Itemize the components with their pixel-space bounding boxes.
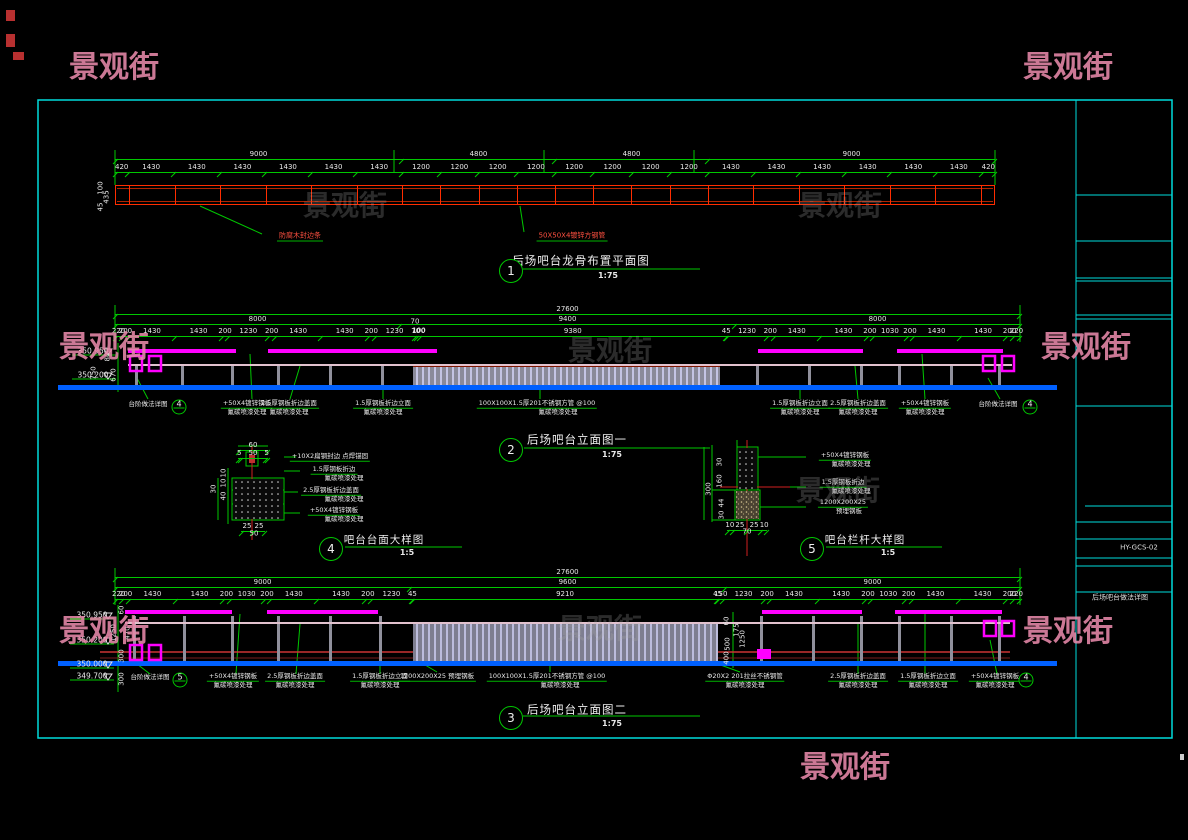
watermark: 景观街 (1041, 322, 1131, 366)
view-number-3: 3 (499, 706, 523, 730)
cad-text: 台阶做法详图 (129, 401, 168, 408)
watermark: 景观街 (568, 329, 652, 369)
dimension-row: 900096009000 (115, 578, 1020, 588)
cad-text: 44 (719, 499, 726, 508)
cad-text: 氟碳喷漆处理 (726, 682, 765, 689)
plan-label: 防腐木封边条 (277, 233, 323, 242)
watermark: 景观街 (1023, 42, 1113, 86)
dimension-row: 800094008000 (115, 315, 1020, 325)
cad-text: 10 (221, 479, 228, 488)
cad-text: 70 (411, 319, 420, 326)
cad-text: 氟碳喷漆处理 (276, 682, 315, 689)
cad-text: 氟碳喷漆处理 (976, 682, 1015, 689)
detail-callout-4: 4 (172, 400, 187, 415)
cad-text: 氟碳喷漆处理 (839, 409, 878, 416)
cad-text: 435 (104, 190, 111, 203)
cad-text: 氟碳喷漆处理 (781, 409, 820, 416)
view-title: 后场吧台龙骨布置平面图 (512, 255, 650, 267)
view-title: 吧台台面大样图 (344, 535, 425, 546)
cad-text: 300 (119, 649, 126, 662)
dimension-row: 4201430143014301430143014301200120012001… (115, 163, 995, 173)
dimension-row: 27600 (115, 305, 1020, 315)
drawing-title: 后场吧台做法详图 (1092, 595, 1148, 602)
level-mark: 349.700 (76, 672, 107, 680)
cad-text: 100 (412, 328, 425, 335)
view-scale: 1:75 (598, 272, 618, 280)
cad-text: 氟碳喷漆处理 (539, 409, 578, 416)
dimension-row: 9000480048009000 (115, 150, 995, 160)
elevation1-graphics (58, 349, 1057, 390)
cad-text: 氟碳喷漆处理 (325, 496, 364, 503)
corner-artifact (6, 10, 15, 21)
cad-text: 30 (719, 511, 726, 520)
cad-text: 670 (111, 368, 118, 381)
cad-text: 300 (119, 672, 126, 685)
corner-artifact (1180, 754, 1184, 760)
view-number-2: 2 (499, 438, 523, 462)
detail-callout-4: 4 (1023, 400, 1038, 415)
cad-text: 氟碳喷漆处理 (325, 475, 364, 482)
cad-text: 氟碳喷漆处理 (906, 409, 945, 416)
cad-text: 氟碳喷漆处理 (214, 682, 253, 689)
cad-text: 750 (91, 366, 98, 379)
watermark: 景观街 (59, 322, 149, 366)
cad-text: 氟碳喷漆处理 (325, 516, 364, 523)
cad-text: 100X100X1.5厚201不锈钢方管 @100 (477, 400, 597, 409)
plan-label: 50X50X4镀锌方钢管 (537, 233, 608, 242)
view-number-4: 4 (319, 537, 343, 561)
watermark: 景观街 (796, 469, 880, 509)
dimension-row: 27600 (115, 568, 1020, 578)
cad-text: 40 (221, 492, 228, 501)
view-scale: 1:75 (602, 720, 622, 728)
watermark: 景观街 (798, 184, 882, 224)
cad-text: 60 (724, 617, 731, 626)
cad-text: 氟碳喷漆处理 (270, 409, 309, 416)
corner-artifact (13, 52, 24, 60)
cad-text: 300 (706, 482, 713, 495)
corner-artifact (6, 34, 15, 47)
watermark: 景观街 (59, 606, 149, 650)
cad-text: 台阶做法详图 (979, 401, 1018, 408)
watermark: 景观街 (558, 607, 642, 647)
detail-callout-5: 5 (173, 673, 188, 688)
cad-sheet: HY-GCS-02 后场吧台做法详图 10043545防腐木封边条50X50X4… (0, 0, 1188, 840)
cad-text: 50 (250, 531, 259, 538)
view-title: 后场吧台立面图一 (527, 434, 627, 446)
cad-text: 氟碳喷漆处理 (541, 682, 580, 689)
view-scale: 1:5 (881, 549, 895, 557)
cad-text: 氟碳喷漆处理 (361, 682, 400, 689)
cad-text: 氟碳喷漆处理 (839, 682, 878, 689)
view-number-5: 5 (800, 537, 824, 561)
dimension-row: 2202001430143020010302001430143020012304… (115, 590, 1020, 600)
cad-text: 1250 (740, 630, 747, 648)
cad-text: 氟碳喷漆处理 (228, 409, 267, 416)
cad-text: 400 (724, 651, 731, 664)
cad-text: 氟碳喷漆处理 (832, 461, 871, 468)
cad-text: 1200X200X25 预埋钢板 (398, 673, 476, 682)
view-number-1: 1 (499, 259, 523, 283)
cad-text: +10X2扁钢封边 点焊锚固 (290, 453, 370, 462)
cad-text: 10 (221, 469, 228, 478)
cad-text: 160 (717, 474, 724, 487)
cad-text: 台阶做法详图 (131, 674, 170, 681)
watermark: 景观街 (69, 42, 159, 86)
watermark: 景观街 (1023, 606, 1113, 650)
drawing-number: HY-GCS-02 (1120, 545, 1158, 552)
cad-text: 氟碳喷漆处理 (909, 682, 948, 689)
watermark: 景观街 (800, 742, 890, 786)
view-scale: 1:75 (602, 451, 622, 459)
cad-text: 30 (717, 458, 724, 467)
watermark: 景观街 (303, 184, 387, 224)
view-title: 吧台栏杆大样图 (825, 535, 906, 546)
cad-text: 氟碳喷漆处理 (364, 409, 403, 416)
dimension-row: 5505 (238, 449, 268, 459)
view-title: 后场吧台立面图二 (527, 704, 627, 716)
cad-text: 30 (211, 485, 218, 494)
level-mark: 350.000 (76, 660, 107, 668)
cad-text: 500 (725, 637, 732, 650)
detail-callout-4: 4 (1019, 673, 1034, 688)
cad-text: 70 (743, 529, 752, 536)
view-scale: 1:5 (400, 549, 414, 557)
cad-text: 45 (98, 203, 105, 212)
